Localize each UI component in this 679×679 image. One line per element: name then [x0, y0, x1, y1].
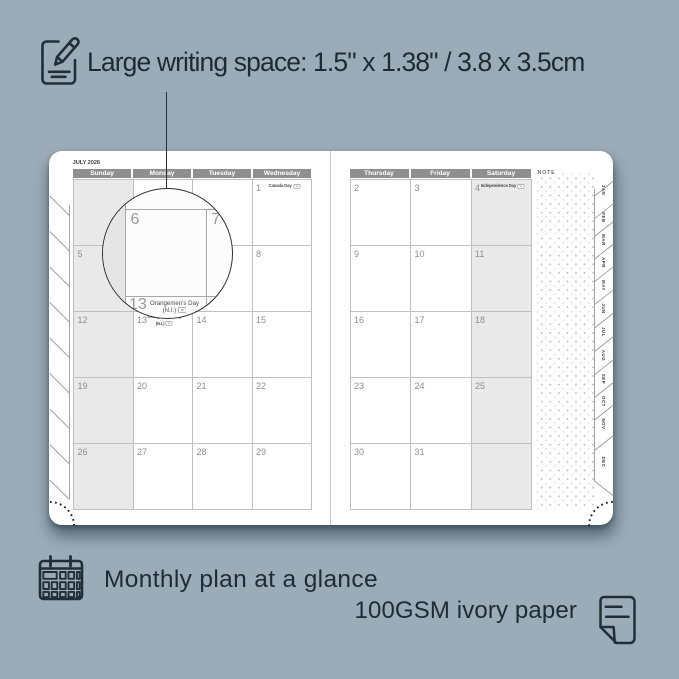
svg-text:MAR: MAR: [601, 234, 606, 246]
svg-text:SEP: SEP: [601, 374, 606, 384]
svg-text:AUG: AUG: [601, 350, 606, 361]
svg-text:OCT: OCT: [601, 396, 606, 407]
svg-text:DEC: DEC: [601, 457, 606, 468]
svg-text:MAY: MAY: [601, 280, 606, 291]
svg-text:JUN: JUN: [601, 303, 606, 313]
svg-text:NOV: NOV: [601, 419, 606, 430]
svg-text:APR: APR: [601, 257, 606, 268]
svg-text:JUL: JUL: [601, 327, 606, 337]
svg-text:JAN: JAN: [601, 185, 606, 195]
svg-text:FEB: FEB: [601, 212, 606, 222]
